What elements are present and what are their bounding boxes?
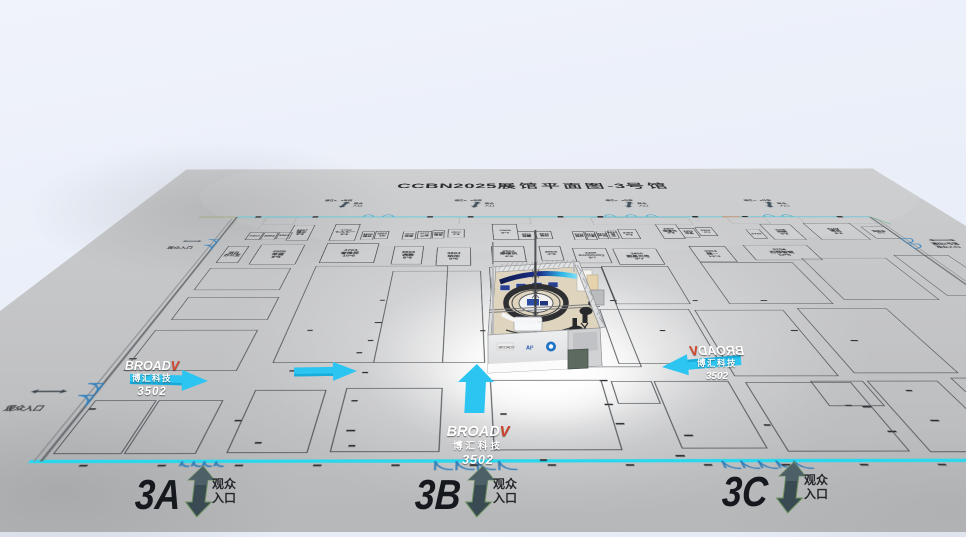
svg-text:AI²: AI² bbox=[526, 345, 534, 352]
svg-text:BROADV: BROADV bbox=[499, 345, 516, 349]
